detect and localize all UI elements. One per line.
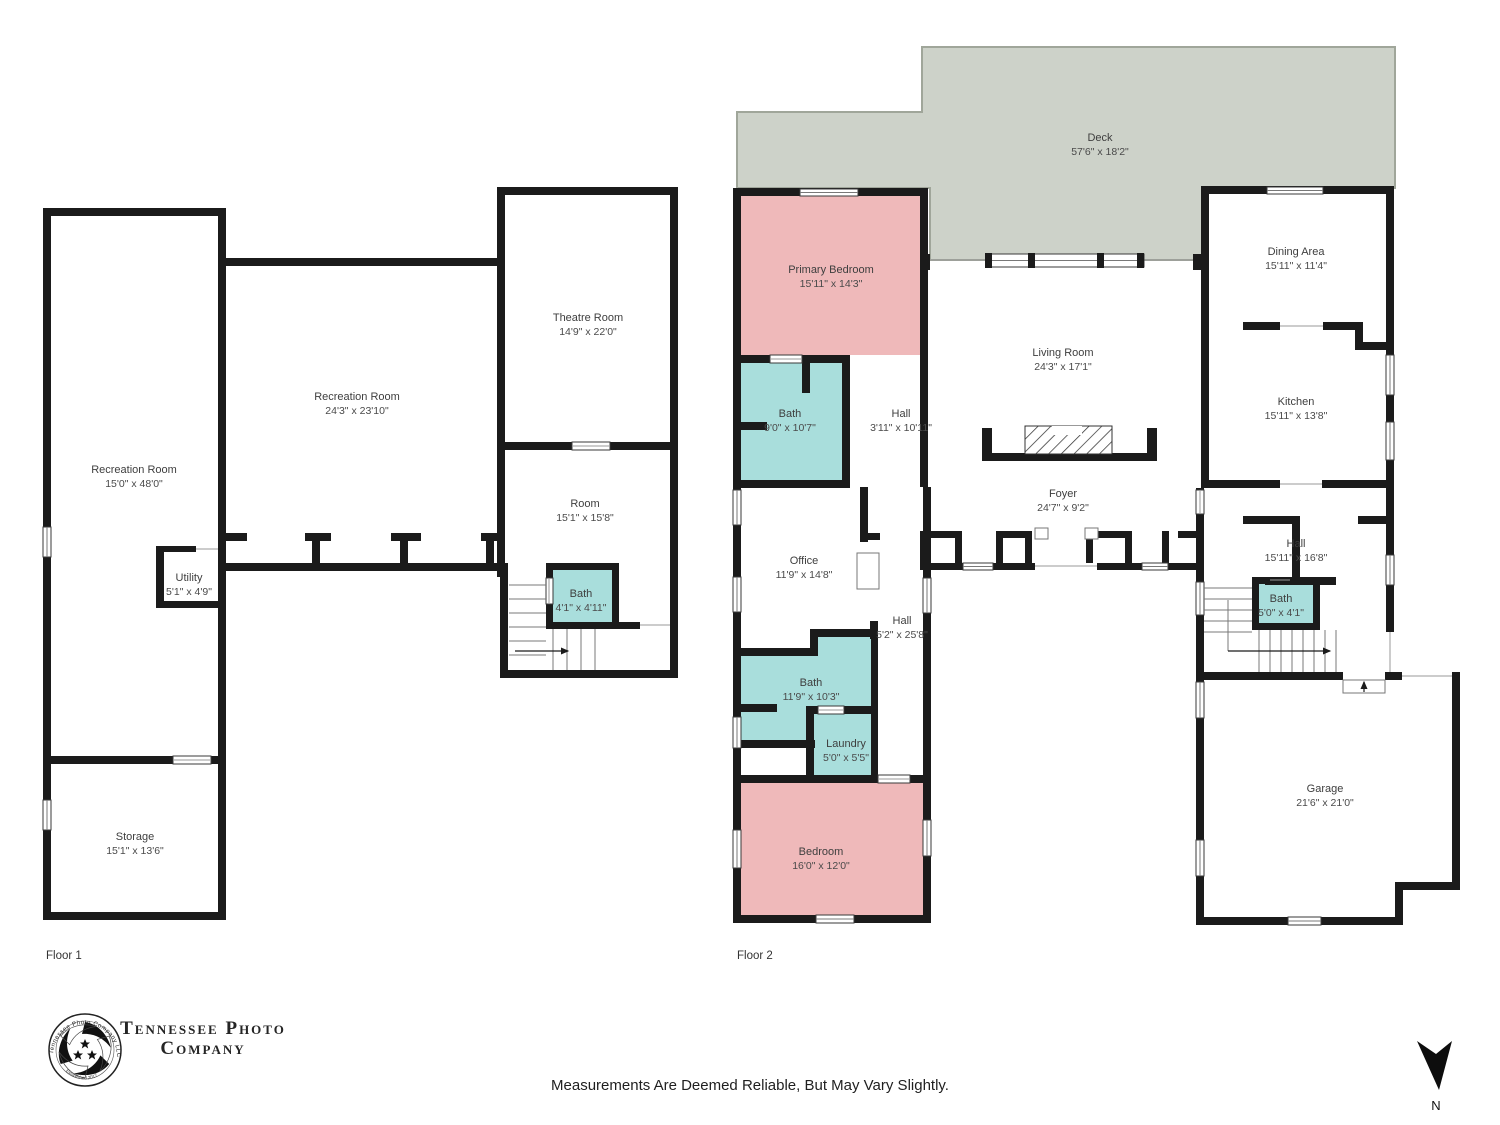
north-label: N [1431, 1098, 1440, 1113]
fireplace [1025, 426, 1112, 454]
floor2-label: Floor 2 [737, 950, 773, 962]
room-label-primary-bedroom: Primary Bedroom 15'11" x 14'3" [788, 263, 874, 291]
room-label-foyer: Foyer 24'7" x 9'2" [1037, 487, 1089, 515]
room-label-hall-small: Hall 3'11" x 10'11" [870, 407, 932, 435]
room-label-bath-f1: Bath 4'1" x 4'11" [556, 587, 607, 615]
room-label-bedroom: Bedroom 16'0" x 12'0" [792, 845, 850, 873]
room-label-office: Office 11'9" x 14'8" [776, 554, 833, 582]
room-label-hall-long: Hall 5'2" x 25'8" [876, 614, 928, 642]
company-name-line2: Company [118, 1038, 288, 1060]
company-name-line1: Tennessee Photo [118, 1018, 288, 1040]
room-label-recreation-room-1: Recreation Room 15'0" x 48'0" [91, 463, 177, 491]
room-label-recreation-room-2: Recreation Room 24'3" x 23'10" [314, 390, 400, 418]
room-label-utility: Utility 5'1" x 4'9" [166, 571, 212, 599]
floor1-plan [43, 187, 678, 920]
measurement-disclaimer: Measurements Are Deemed Reliable, But Ma… [551, 1077, 949, 1094]
room-label-hall-kitchen: Hall 15'11" x 16'8" [1265, 537, 1328, 565]
room-label-bath-large: Bath 11'9" x 10'3" [783, 676, 840, 704]
room-label-theatre-room: Theatre Room 14'9" x 22'0" [553, 311, 623, 339]
floor1-walls [43, 187, 678, 920]
room-label-living-room: Living Room 24'3" x 17'1" [1032, 346, 1093, 374]
room-label-storage: Storage 15'1" x 13'6" [106, 830, 164, 858]
room-label-garage: Garage 21'6" x 21'0" [1296, 782, 1354, 810]
north-arrow-icon [1417, 1041, 1452, 1090]
floorplan-page: Tennessee Photo Company LLC Established … [0, 0, 1500, 1125]
room-label-bath-stairs: Bath 5'0" x 4'1" [1258, 592, 1304, 620]
room-label-kitchen: Kitchen 15'11" x 13'8" [1265, 395, 1328, 423]
company-name: Tennessee Photo Company [118, 1018, 288, 1060]
room-label-deck: Deck 57'6" x 18'2" [1071, 131, 1129, 159]
floor1-label: Floor 1 [46, 950, 82, 962]
room-label-dining-area: Dining Area 15'11" x 11'4" [1265, 245, 1327, 273]
room-label-bath-primary: Bath 9'0" x 10'7" [764, 407, 816, 435]
room-label-room: Room 15'1" x 15'8" [556, 497, 614, 525]
room-label-laundry: Laundry 5'0" x 5'5" [823, 737, 869, 765]
company-logo: Tennessee Photo Company LLC Established … [48, 1013, 122, 1086]
